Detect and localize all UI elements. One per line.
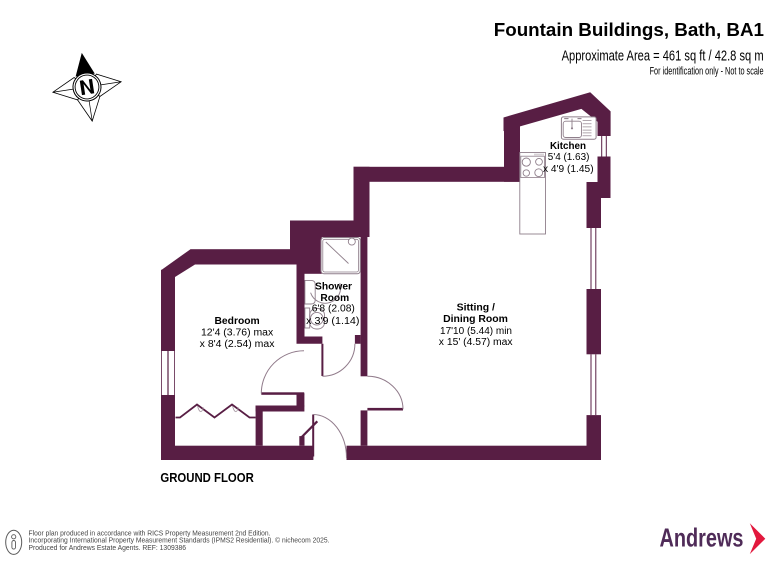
svg-text:Produced for Andrews Estate Ag: Produced for Andrews Estate Agents. REF:…	[29, 545, 187, 552]
svg-text:GROUND FLOOR: GROUND FLOOR	[160, 471, 253, 485]
svg-text:x 3'9 (1.14): x 3'9 (1.14)	[306, 316, 359, 327]
svg-text:x 4'9 (1.45): x 4'9 (1.45)	[543, 164, 594, 175]
svg-text:Andrews: Andrews	[660, 522, 744, 552]
svg-text:Shower: Shower	[315, 281, 352, 292]
svg-text:Bedroom: Bedroom	[215, 316, 260, 327]
svg-text:Dining Room: Dining Room	[443, 314, 508, 325]
svg-text:12'4 (3.76) max: 12'4 (3.76) max	[201, 328, 273, 339]
svg-text:Incorporating International Pr: Incorporating International Property Mea…	[29, 537, 330, 545]
svg-text:Room: Room	[320, 293, 349, 304]
svg-text:17'10 (5.44) min: 17'10 (5.44) min	[440, 326, 512, 337]
svg-text:Fountain Buildings, Bath, BA1: Fountain Buildings, Bath, BA1	[494, 19, 764, 40]
svg-text:Kitchen: Kitchen	[550, 141, 586, 152]
svg-text:Floor plan produced in accorda: Floor plan produced in accordance with R…	[29, 530, 271, 537]
svg-text:x 15' (4.57) max: x 15' (4.57) max	[439, 337, 513, 348]
svg-text:For identification only - Not: For identification only - Not to scale	[650, 66, 764, 78]
svg-text:5'4 (1.63): 5'4 (1.63)	[548, 152, 590, 163]
svg-text:x 8'4 (2.54) max: x 8'4 (2.54) max	[200, 339, 275, 350]
svg-text:6'8 (2.08): 6'8 (2.08)	[312, 304, 355, 315]
svg-text:Sitting /: Sitting /	[457, 302, 495, 313]
svg-text:Approximate Area = 461 sq ft /: Approximate Area = 461 sq ft / 42.8 sq m	[562, 48, 764, 64]
